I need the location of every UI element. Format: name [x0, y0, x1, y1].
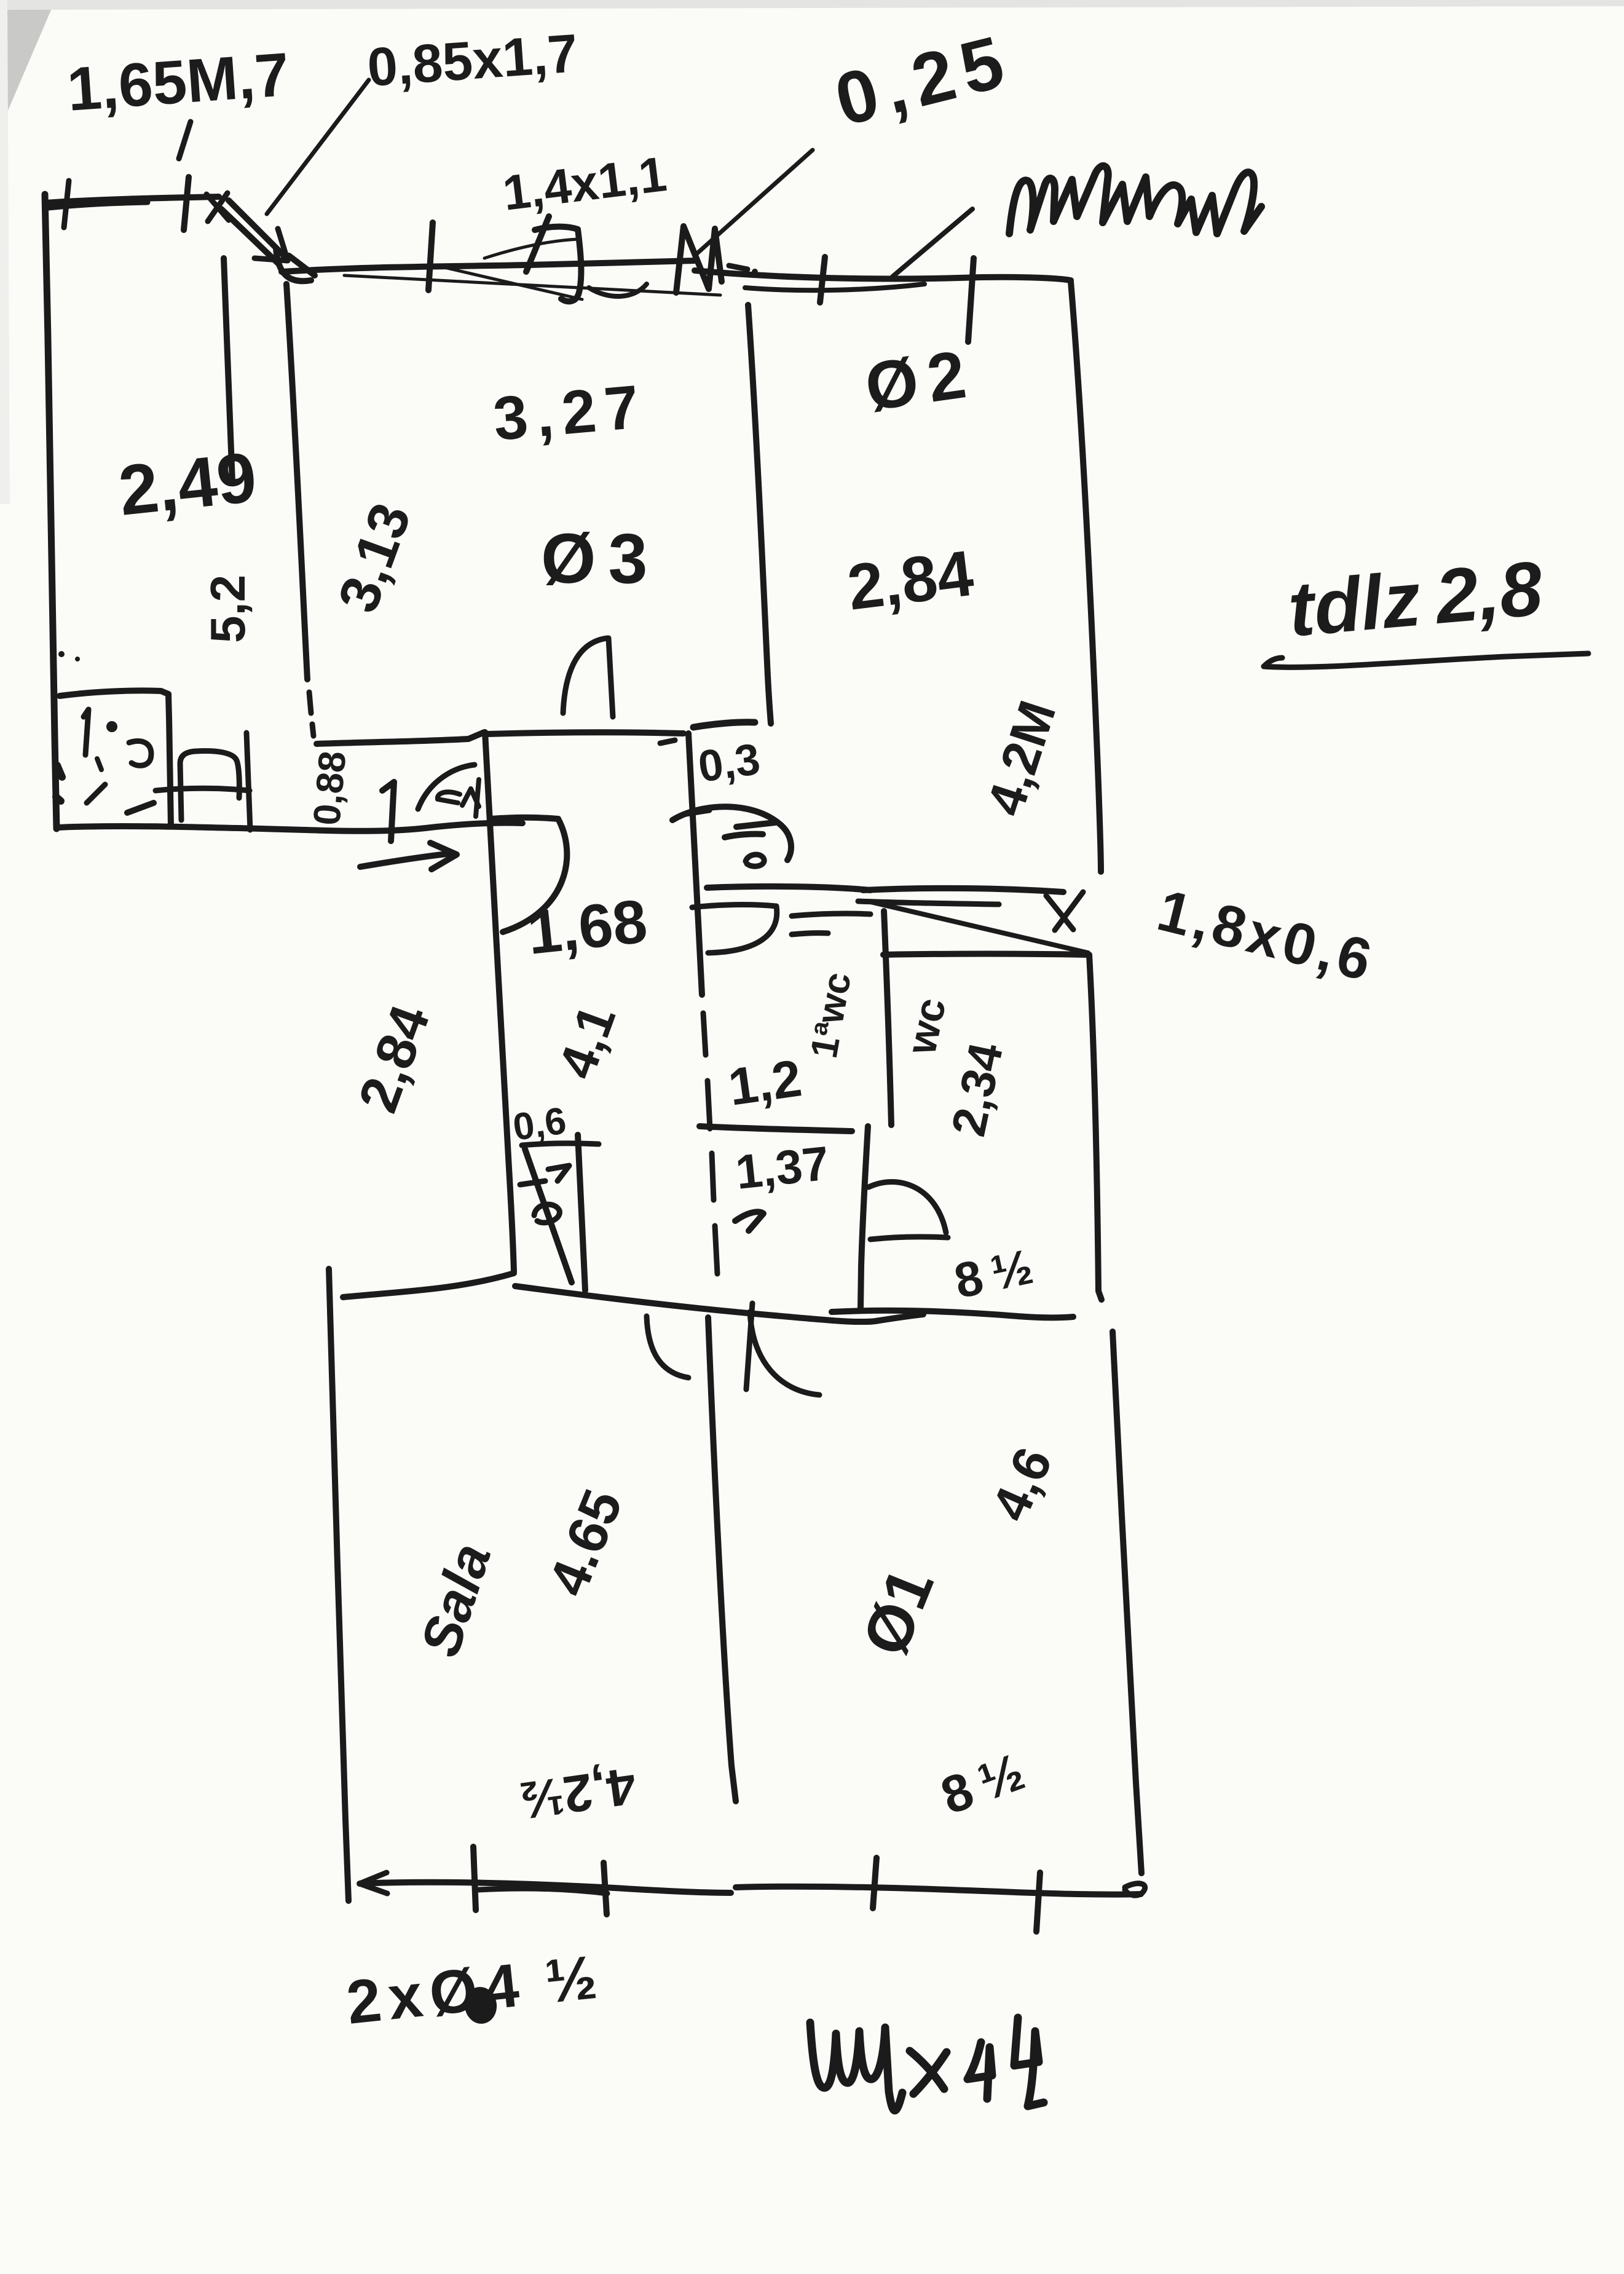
- svg-text:Ø2: Ø2: [861, 335, 980, 425]
- svg-text:1,2: 1,2: [725, 1049, 805, 1117]
- svg-text:1,68: 1,68: [524, 886, 650, 968]
- svg-text:0,6: 0,6: [510, 1100, 569, 1149]
- svg-text:2,49: 2,49: [115, 438, 260, 531]
- svg-text:0,88: 0,88: [305, 749, 354, 827]
- svg-text:2,84: 2,84: [844, 537, 977, 624]
- svg-text:1,37: 1,37: [733, 1136, 832, 1199]
- svg-text:0,3: 0,3: [695, 735, 763, 792]
- svg-text:5,2: 5,2: [200, 575, 255, 643]
- svg-text:Ø3: Ø3: [541, 519, 660, 598]
- svg-text:3,27: 3,27: [491, 371, 650, 453]
